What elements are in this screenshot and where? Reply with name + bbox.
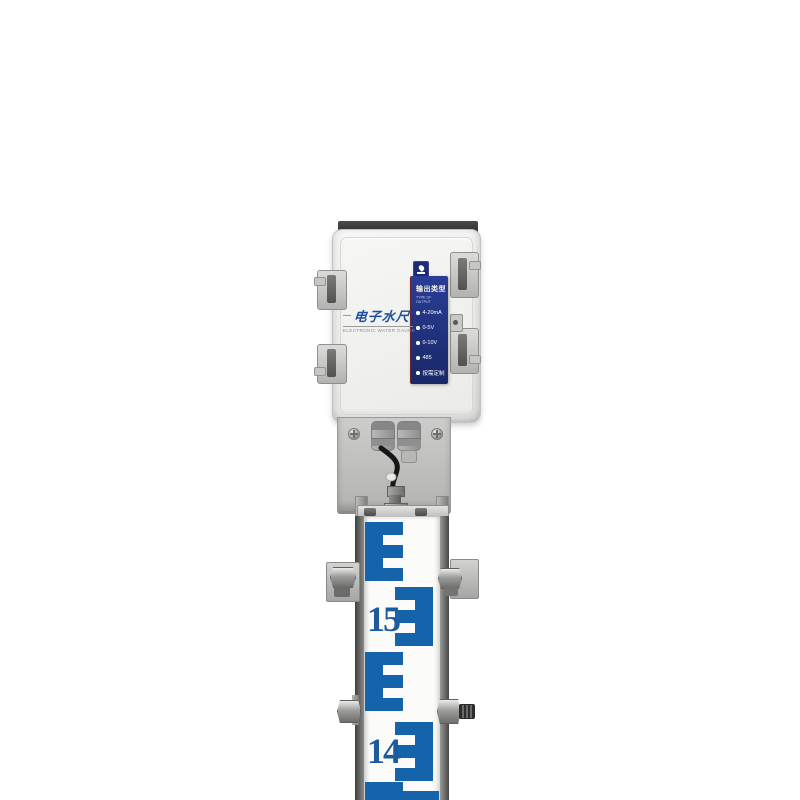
gauge-rail-right [440, 516, 449, 800]
bullet-dot-icon [416, 356, 420, 360]
latch-slot [458, 258, 467, 290]
drop-glyph [417, 264, 425, 272]
cable-fitting [389, 495, 401, 503]
latch-slot [327, 349, 336, 377]
drop-base [417, 272, 425, 274]
output-option: 0-5V [416, 325, 448, 331]
bullet-dot-icon [416, 311, 420, 315]
brand-label: 电子水尺 ELECTRONIC WATER GAUGE [343, 306, 413, 333]
bolt-washer [334, 587, 350, 597]
panel-title: 输出类型 [416, 284, 448, 294]
scale-number-14: 14 [364, 733, 402, 769]
gauge-rail-left [355, 516, 364, 800]
output-option-label: 4-20mA [423, 310, 442, 316]
hinge-tab [450, 314, 463, 332]
output-option: 0-10V [416, 340, 448, 346]
latch-left-bottom [317, 344, 347, 384]
output-option: 4-20mA [416, 310, 448, 316]
latch-slot [458, 334, 467, 366]
brand-name-en: ELECTRONIC WATER GAUGE [343, 328, 413, 333]
latch-tab [314, 367, 326, 376]
product-photo: 输出类型 TYPE OF OUTPUT 4-20mA 0-5V 0-10V 48… [0, 0, 800, 800]
output-option-label: 485 [423, 355, 432, 361]
scale-number-15: 15 [364, 601, 402, 637]
screw-icon [348, 428, 360, 440]
output-option-label: 0-10V [423, 340, 438, 346]
output-option: 按需定制 [416, 370, 448, 376]
output-type-panel: 输出类型 TYPE OF OUTPUT 4-20mA 0-5V 0-10V 48… [410, 276, 448, 384]
bullet-dot-icon [416, 371, 420, 375]
latch-right-top [450, 252, 479, 298]
output-option: 485 [416, 355, 448, 361]
latch-right-bottom [450, 328, 479, 374]
brand-name-cn: 电子水尺 [353, 306, 411, 325]
latch-tab [469, 355, 481, 364]
cap-bolt-icon [415, 508, 427, 516]
output-option-label: 按需定制 [423, 369, 445, 377]
latch-slot [327, 275, 336, 303]
threaded-stud [459, 704, 475, 719]
hex-bolt-icon [438, 568, 462, 589]
cap-bolt-icon [364, 508, 376, 516]
hex-bolt-icon [330, 567, 356, 588]
output-option-label: 0-5V [423, 325, 435, 331]
bolt-washer [444, 587, 458, 596]
bullet-dot-icon [416, 326, 420, 330]
latch-tab [469, 261, 481, 270]
latch-left-top [317, 270, 347, 310]
label-rule-left [343, 315, 351, 316]
bullet-dot-icon [416, 341, 420, 345]
screw-icon [431, 428, 443, 440]
panel-subtitle: TYPE OF OUTPUT [416, 295, 445, 304]
hex-bolt-icon [437, 699, 461, 724]
hinge-hole [453, 320, 458, 325]
latch-tab [314, 277, 326, 286]
gauge-scale-face: 15 14 [364, 517, 440, 800]
hex-bolt-icon [337, 700, 361, 723]
cable-tie [386, 473, 396, 481]
label-rule [343, 326, 413, 327]
